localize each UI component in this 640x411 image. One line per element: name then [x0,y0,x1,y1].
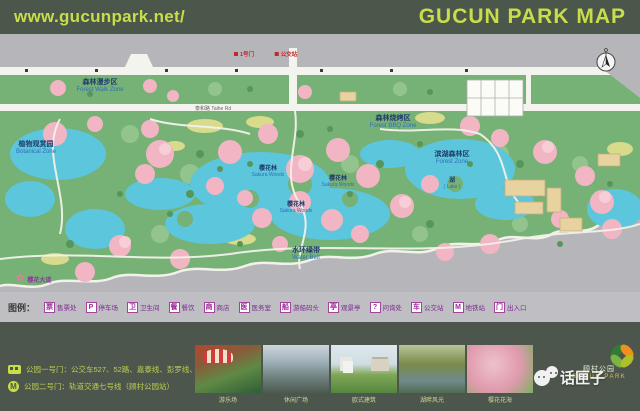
parking-lot [467,80,523,116]
legend-symbol-icon: 卫 [127,302,138,313]
pavilion-decor [343,361,353,373]
photo-caption: 欧式建筑 [352,395,376,404]
legend-item-label: 公交站 [424,302,444,312]
legend-symbol-icon: 门 [494,302,505,313]
transit-text: 公园一号门：公交车527、52路、嘉泰线、彭罗线、北嘉线 [26,364,219,375]
legend-item: 亭观景亭 [328,302,361,313]
photo-caption: 休闲广场 [284,395,308,404]
legend-item-label: 售票处 [57,302,77,312]
legend-item-label: 停车场 [99,302,119,312]
legend-item: P停车场 [86,302,119,313]
photo-caption: 樱花花海 [488,395,512,404]
header-bar: www.gucunpark.net/ GUCUN PARK MAP [0,0,640,34]
transit-row: 公园一号门：公交车527、52路、嘉泰线、彭罗线、北嘉线 [8,364,219,375]
legend-item-label: 卫生间 [140,302,160,312]
legend-symbol-icon: ? [370,302,381,313]
photo-strip: 游乐场休闲广场欧式建筑湖畔风光樱花花海 [195,345,533,404]
park-photo [263,345,329,393]
legend-item: 票售票处 [44,302,77,313]
bus-icon [8,365,21,374]
legend-parking-icon: P [86,302,97,313]
site-url: www.gucunpark.net/ [14,7,185,27]
legend-item: 船游船码头 [280,302,319,313]
legend-item-label: 游船码头 [293,302,319,312]
legend-item: 医医务室 [239,302,272,313]
photo-caption: 游乐场 [219,395,237,404]
transit-row: M公园二号门：轨道交通七号线（顾村公园站） [8,381,219,392]
park-photo [399,345,465,393]
watermark-bubble-small-icon [546,366,558,378]
legend-item-label: 地铁站 [466,302,486,312]
legend-symbol-icon: 车 [411,302,422,313]
photo-cell: 游乐场 [195,345,261,404]
road-name-label: 泰和路 Taihe Rd [195,105,231,112]
legend-symbol-icon: 医 [239,302,250,313]
page-title: GUCUN PARK MAP [419,5,626,29]
legend-symbol-icon: 亭 [328,302,339,313]
legend-bar: 图例： 票售票处P停车场卫卫生间餐餐饮商商店医医务室船游船码头亭观景亭?问询处车… [0,292,640,322]
park-map-graphic: 泰和路 Taihe Rd [0,34,640,292]
overpass-shape [125,54,153,67]
photo-cell: 湖畔风光 [399,345,465,404]
legend-item-label: 观景亭 [341,302,361,312]
park-photo [467,345,533,393]
legend-item-label: 医务室 [252,302,272,312]
footer-band: 公园一号门：公交车527、52路、嘉泰线、彭罗线、北嘉线M公园二号门：轨道交通七… [0,322,640,411]
park-photo [195,345,261,393]
legend-item: M地铁站 [453,302,486,313]
watermark-text: 话匣子 [560,371,605,386]
legend-item: 车公交站 [411,302,444,313]
legend-item-label: 餐饮 [182,302,195,312]
legend-symbol-icon: 票 [44,302,55,313]
legend-item: 卫卫生间 [127,302,160,313]
gucun-park-map-page: www.gucunpark.net/ GUCUN PARK MAP [0,0,640,411]
legend-item: 门出入口 [494,302,527,313]
photo-caption: 湖畔风光 [420,395,444,404]
transit-text: 公园二号门：轨道交通七号线（顾村公园站） [24,381,174,392]
legend-symbol-icon: M [453,302,464,313]
legend-item: 商商店 [204,302,230,313]
legend-title: 图例： [8,301,35,314]
legend-item-label: 商店 [217,302,230,312]
watermark: 话匣子 [534,366,605,386]
carousel-decor [203,349,233,363]
chateau-decor [371,359,389,371]
gucun-park-logo [608,342,636,370]
park-map: 泰和路 Taihe Rd [0,34,640,292]
legend-symbol-icon: 餐 [169,302,180,313]
legend-symbol-icon: 商 [204,302,215,313]
park-photo [331,345,397,393]
metro-icon: M [8,381,19,392]
legend-item: ?问询处 [370,302,403,313]
legend-item: 餐餐饮 [169,302,195,313]
photo-cell: 樱花花海 [467,345,533,404]
legend-symbol-icon: 船 [280,302,291,313]
photo-cell: 欧式建筑 [331,345,397,404]
legend-item-label: 出入口 [507,302,527,312]
transit-info: 公园一号门：公交车527、52路、嘉泰线、彭罗线、北嘉线M公园二号门：轨道交通七… [8,364,219,392]
legend-item-label: 问询处 [383,302,403,312]
photo-cell: 休闲广场 [263,345,329,404]
